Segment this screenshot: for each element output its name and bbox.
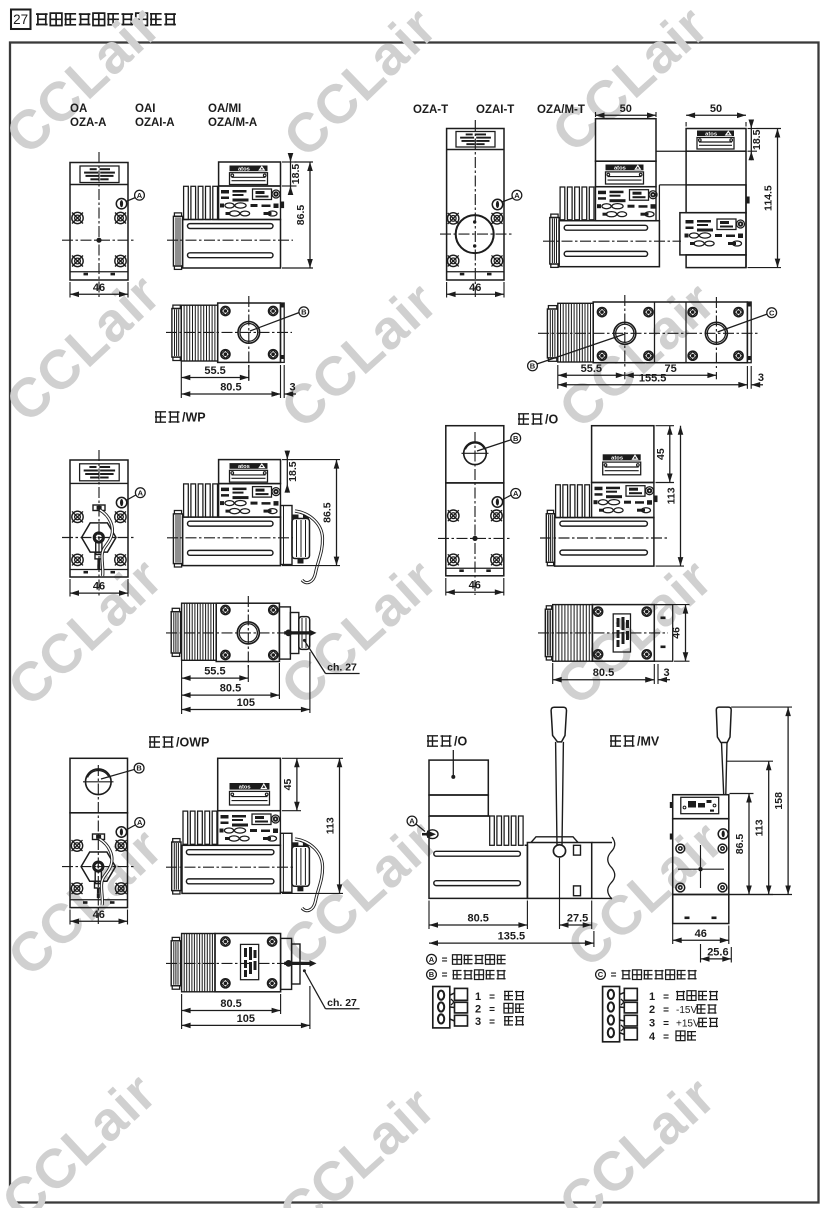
- svg-text:105: 105: [237, 1013, 255, 1025]
- svg-text:113: 113: [325, 817, 337, 834]
- svg-text:25.6: 25.6: [707, 946, 728, 958]
- svg-text:46: 46: [469, 282, 481, 294]
- svg-text:55.5: 55.5: [581, 363, 602, 375]
- svg-text:135.5: 135.5: [498, 931, 526, 943]
- svg-text:2: 2: [475, 1003, 481, 1015]
- svg-text:27: 27: [13, 12, 28, 27]
- svg-text:/WP: /WP: [182, 411, 206, 425]
- svg-text:18.5: 18.5: [290, 164, 302, 185]
- svg-text:45: 45: [655, 448, 667, 460]
- svg-text:B: B: [301, 307, 307, 316]
- svg-text:OZAI-A: OZAI-A: [135, 117, 175, 129]
- svg-text:OAI: OAI: [135, 103, 155, 115]
- svg-text:114.5: 114.5: [763, 185, 775, 211]
- svg-text:46: 46: [93, 282, 105, 294]
- svg-text:C: C: [598, 970, 604, 979]
- svg-text:OZA-A: OZA-A: [70, 117, 106, 129]
- svg-text:A: A: [514, 191, 520, 200]
- svg-text:55.5: 55.5: [204, 666, 225, 678]
- svg-text:A: A: [513, 489, 519, 498]
- svg-text:ch. 27: ch. 27: [327, 662, 357, 674]
- svg-text:3: 3: [663, 667, 669, 679]
- svg-text:OZA/M-T: OZA/M-T: [537, 104, 585, 116]
- svg-text:atos: atos: [614, 166, 626, 172]
- svg-text:=: =: [442, 970, 448, 981]
- svg-text:atos: atos: [705, 131, 717, 137]
- svg-text:3: 3: [649, 1018, 655, 1030]
- svg-text:86.5: 86.5: [322, 502, 334, 523]
- svg-text:atos: atos: [238, 166, 250, 172]
- svg-text:=: =: [489, 1004, 495, 1015]
- svg-text:+15V: +15V: [676, 1018, 700, 1029]
- svg-text:80.5: 80.5: [467, 913, 488, 925]
- svg-text:B: B: [429, 970, 435, 979]
- svg-text:3: 3: [758, 372, 764, 384]
- svg-text:80.5: 80.5: [220, 683, 241, 695]
- svg-text:50: 50: [620, 103, 632, 115]
- svg-text:ch. 27: ch. 27: [327, 997, 357, 1009]
- svg-text:86.5: 86.5: [734, 834, 746, 855]
- svg-text:-15V: -15V: [676, 1005, 697, 1016]
- svg-text:A: A: [409, 817, 415, 826]
- svg-text:86.5: 86.5: [295, 205, 307, 226]
- svg-text:/MV: /MV: [637, 735, 660, 749]
- svg-text:=: =: [611, 970, 617, 981]
- svg-text:A: A: [137, 191, 143, 200]
- svg-text:OZA/M-A: OZA/M-A: [208, 117, 257, 129]
- svg-text:80.5: 80.5: [593, 667, 614, 679]
- svg-text:3: 3: [475, 1016, 481, 1028]
- svg-text:2: 2: [649, 1004, 655, 1016]
- svg-text:OA: OA: [70, 103, 87, 115]
- svg-text:45: 45: [282, 779, 294, 791]
- svg-text:=: =: [489, 992, 495, 1003]
- svg-text:3: 3: [289, 382, 295, 394]
- svg-text:=: =: [663, 1032, 669, 1043]
- svg-text:atos: atos: [239, 784, 251, 790]
- svg-text:C: C: [769, 308, 775, 317]
- svg-text:atos: atos: [238, 464, 250, 470]
- svg-text:55.5: 55.5: [204, 365, 225, 377]
- svg-text:113: 113: [754, 819, 766, 836]
- svg-text:50: 50: [710, 103, 722, 115]
- svg-text:/O: /O: [545, 413, 558, 427]
- svg-text:A: A: [138, 488, 144, 497]
- svg-text:/O: /O: [454, 735, 467, 749]
- svg-text:46: 46: [671, 627, 683, 639]
- svg-text:B: B: [513, 434, 519, 443]
- svg-text:80.5: 80.5: [220, 998, 241, 1010]
- svg-text:46: 46: [93, 909, 105, 921]
- svg-text:OZAI-T: OZAI-T: [476, 104, 514, 116]
- svg-text:=: =: [663, 1005, 669, 1016]
- svg-text:A: A: [429, 955, 435, 964]
- svg-text:46: 46: [695, 928, 707, 940]
- svg-text:=: =: [663, 992, 669, 1003]
- svg-text:atos: atos: [611, 456, 623, 462]
- svg-text:158: 158: [773, 792, 785, 810]
- svg-text:46: 46: [93, 581, 105, 593]
- svg-text:105: 105: [237, 697, 255, 709]
- svg-text:113: 113: [666, 487, 678, 504]
- svg-text:155.5: 155.5: [639, 372, 667, 384]
- svg-text:18.5: 18.5: [287, 461, 299, 482]
- svg-text:27.5: 27.5: [567, 913, 588, 925]
- svg-text:18.5: 18.5: [751, 129, 763, 150]
- svg-text:B: B: [136, 764, 142, 773]
- svg-text:46: 46: [469, 580, 481, 592]
- svg-text:4: 4: [649, 1031, 656, 1043]
- svg-text:B: B: [530, 361, 536, 370]
- svg-text:80.5: 80.5: [220, 382, 241, 394]
- svg-text:A: A: [137, 818, 143, 827]
- svg-text:OZA-T: OZA-T: [413, 104, 448, 116]
- svg-text:=: =: [663, 1019, 669, 1030]
- svg-text:1: 1: [649, 991, 655, 1003]
- svg-text:=: =: [442, 955, 448, 966]
- svg-text:=: =: [489, 1017, 495, 1028]
- svg-text:/OWP: /OWP: [176, 736, 209, 750]
- svg-text:OA/MI: OA/MI: [208, 103, 241, 115]
- svg-text:1: 1: [475, 991, 481, 1003]
